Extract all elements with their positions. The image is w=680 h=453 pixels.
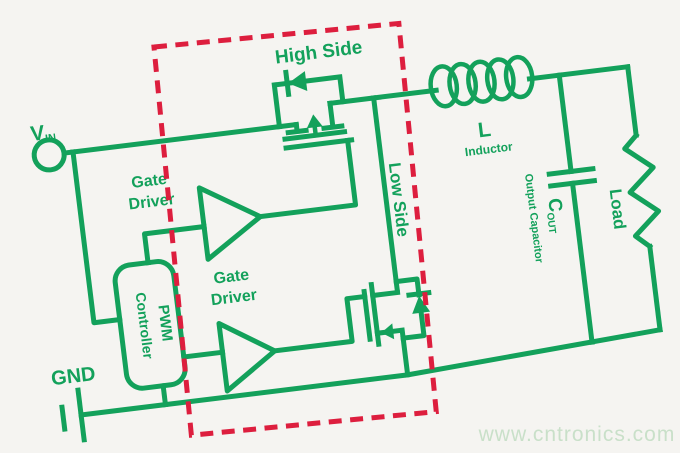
upper-driver-to-gate-wire xyxy=(252,140,355,216)
lower-driver-to-gate-wire xyxy=(269,297,370,351)
hs-diode-cathode-bar xyxy=(286,72,289,94)
upper-gate-driver-triangle-icon xyxy=(199,181,264,259)
pwm-controller-label: PWM Controller xyxy=(133,289,178,360)
hs-source-post xyxy=(321,102,342,128)
lower-gate-driver-label: Gate Driver xyxy=(207,266,258,309)
hs-body-arrow-stem xyxy=(315,127,316,135)
ground-bar-tall xyxy=(78,390,84,440)
ls-drain-stub xyxy=(373,292,398,295)
pwm-ground-stub-wire xyxy=(163,386,165,405)
cout-name-label: Output Capacitor xyxy=(522,173,545,264)
schematic-group: VIN GND High Side Low Side Gate Driver G… xyxy=(15,4,678,443)
inductor-name-label: Inductor xyxy=(464,139,514,159)
lower-gate-driver-triangle-icon xyxy=(219,317,279,391)
watermark: www.cntronics.com xyxy=(478,423,676,446)
schematic-canvas: VIN GND High Side Low Side Gate Driver G… xyxy=(0,0,680,453)
svg-text:Driver: Driver xyxy=(210,287,258,310)
inductor-ref-label: L xyxy=(477,118,493,142)
vin-label: VIN xyxy=(29,120,57,147)
load-label: Load xyxy=(606,188,630,231)
pwm-to-lower-driver-wire xyxy=(184,352,223,357)
switch-node-rail-wire xyxy=(330,90,436,103)
high-side-label: High Side xyxy=(274,37,364,69)
vin-to-pwm-wire xyxy=(73,149,120,323)
ground-rail-wire xyxy=(79,330,661,415)
load-top-lead xyxy=(628,67,636,135)
low-side-mosfet-icon xyxy=(363,282,407,379)
buck-converter-schematic: VIN GND High Side Low Side Gate Driver G… xyxy=(0,0,680,453)
load-zigzag xyxy=(623,134,662,248)
hs-gate-bar xyxy=(286,140,352,148)
gnd-label: GND xyxy=(50,363,97,390)
svg-text:Gate: Gate xyxy=(213,266,250,287)
cout-ref-label: COUT xyxy=(542,197,568,234)
vin-rail-wire xyxy=(64,125,296,154)
ground-symbol-icon xyxy=(60,390,84,442)
cap-top-lead xyxy=(559,75,571,171)
ground-bar-short xyxy=(62,407,65,429)
svg-text:Controller: Controller xyxy=(133,291,157,360)
svg-text:Gate: Gate xyxy=(130,171,167,192)
load-bottom-lead xyxy=(650,246,660,329)
cap-bottom-lead xyxy=(573,183,592,342)
output-rail-wire xyxy=(529,67,627,79)
svg-text:PWM: PWM xyxy=(154,304,175,342)
inductor-coil-icon xyxy=(428,56,534,108)
ls-body-arrow-icon xyxy=(380,323,394,340)
ls-gate-bar xyxy=(364,292,370,340)
